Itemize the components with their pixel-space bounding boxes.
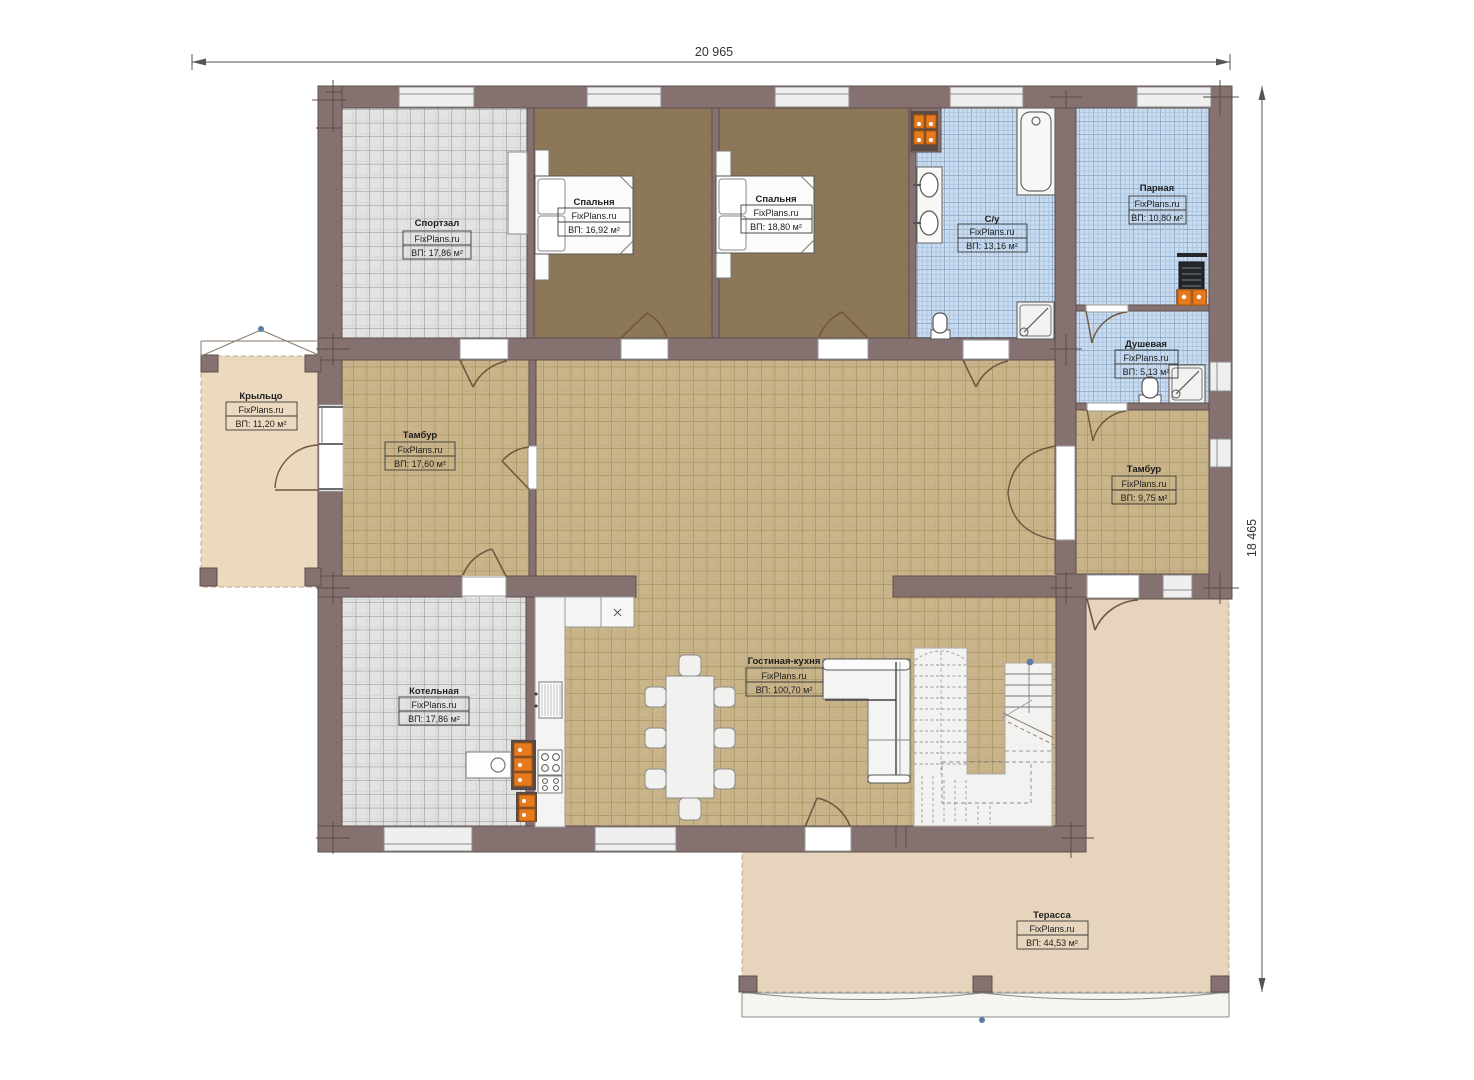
svg-text:FixPlans.ru: FixPlans.ru xyxy=(397,445,442,455)
svg-text:FixPlans.ru: FixPlans.ru xyxy=(411,700,456,710)
svg-text:ВП: 17,60 м²: ВП: 17,60 м² xyxy=(394,459,446,469)
svg-text:ВП: 10,80 м²: ВП: 10,80 м² xyxy=(1131,213,1183,223)
svg-text:ВП: 5,13 м²: ВП: 5,13 м² xyxy=(1123,367,1170,377)
svg-text:Гостиная-кухня: Гостиная-кухня xyxy=(748,656,821,667)
svg-text:Спальня: Спальня xyxy=(573,197,614,208)
svg-text:ВП: 13,16 м²: ВП: 13,16 м² xyxy=(966,241,1018,251)
svg-text:Тамбур: Тамбур xyxy=(1127,464,1162,475)
svg-text:ВП: 16,92 м²: ВП: 16,92 м² xyxy=(568,225,620,235)
svg-text:FixPlans.ru: FixPlans.ru xyxy=(414,234,459,244)
svg-text:FixPlans.ru: FixPlans.ru xyxy=(761,671,806,681)
svg-text:FixPlans.ru: FixPlans.ru xyxy=(753,208,798,218)
svg-text:Душевая: Душевая xyxy=(1125,339,1167,350)
svg-text:ВП: 100,70 м²: ВП: 100,70 м² xyxy=(756,685,813,695)
svg-text:FixPlans.ru: FixPlans.ru xyxy=(1123,353,1168,363)
svg-text:Крыльцо: Крыльцо xyxy=(239,391,282,402)
svg-text:FixPlans.ru: FixPlans.ru xyxy=(1029,924,1074,934)
svg-text:Котельная: Котельная xyxy=(409,686,459,697)
svg-text:FixPlans.ru: FixPlans.ru xyxy=(1121,479,1166,489)
svg-text:ВП: 17,86 м²: ВП: 17,86 м² xyxy=(408,714,460,724)
svg-text:18 465: 18 465 xyxy=(1245,519,1259,557)
svg-text:Спортзал: Спортзал xyxy=(415,218,460,229)
svg-text:ВП: 9,75 м²: ВП: 9,75 м² xyxy=(1121,493,1168,503)
svg-text:ВП: 18,80 м²: ВП: 18,80 м² xyxy=(750,222,802,232)
svg-text:Спальня: Спальня xyxy=(755,194,796,205)
svg-text:20 965: 20 965 xyxy=(695,45,733,59)
svg-text:FixPlans.ru: FixPlans.ru xyxy=(1134,199,1179,209)
svg-text:Парная: Парная xyxy=(1140,183,1174,194)
svg-text:ВП: 17,86 м²: ВП: 17,86 м² xyxy=(411,248,463,258)
svg-text:ВП: 44,53 м²: ВП: 44,53 м² xyxy=(1026,938,1078,948)
svg-text:FixPlans.ru: FixPlans.ru xyxy=(238,405,283,415)
svg-text:FixPlans.ru: FixPlans.ru xyxy=(969,227,1014,237)
svg-text:Терасса: Терасса xyxy=(1033,910,1071,921)
svg-text:Тамбур: Тамбур xyxy=(403,430,438,441)
svg-text:ВП: 11,20 м²: ВП: 11,20 м² xyxy=(235,419,286,429)
svg-text:С/у: С/у xyxy=(985,214,1001,225)
svg-text:FixPlans.ru: FixPlans.ru xyxy=(571,211,616,221)
